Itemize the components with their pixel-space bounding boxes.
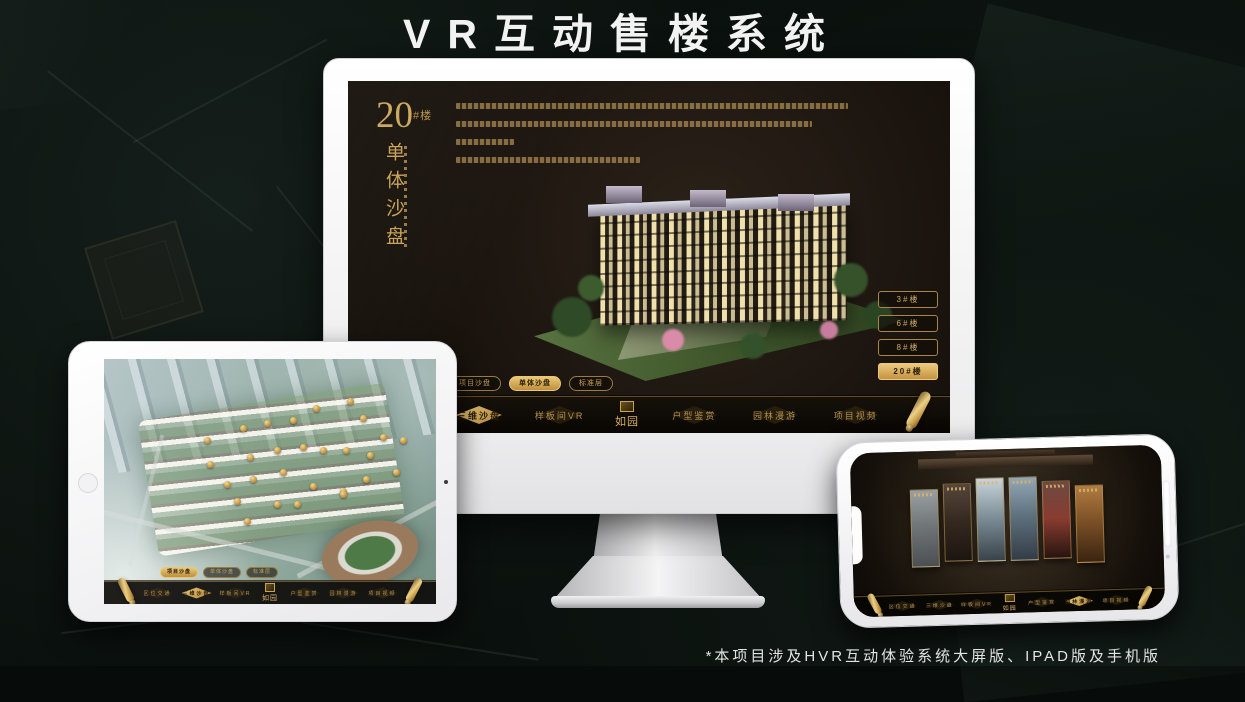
scene-panel-4[interactable] bbox=[1008, 476, 1038, 561]
scroll-icon-wrap bbox=[114, 583, 138, 603]
building-marker[interactable] bbox=[244, 518, 251, 525]
nav-item-2[interactable]: 三维沙盘 bbox=[177, 584, 216, 603]
phone-screen: 区位交通三维沙盘样板间VR如园户型鉴赏园林漫游项目视频 bbox=[850, 445, 1165, 618]
building-marker[interactable] bbox=[274, 501, 281, 508]
building-marker[interactable] bbox=[280, 469, 287, 476]
brand-logo-icon bbox=[265, 583, 275, 591]
phone-notch bbox=[851, 506, 863, 564]
building-marker[interactable] bbox=[320, 447, 327, 454]
main-navbar: 区位交通三维沙盘样板间VR如园户型鉴赏园林漫游项目视频 bbox=[104, 581, 436, 604]
brand-logo: 如园 bbox=[255, 583, 285, 602]
scene-panel-6[interactable] bbox=[1075, 484, 1105, 563]
building-marker[interactable] bbox=[204, 437, 211, 444]
scroll-ribbon-icon[interactable] bbox=[1137, 585, 1153, 608]
brand-logo-text: 如园 bbox=[255, 593, 285, 603]
brand-logo-text: 如园 bbox=[996, 603, 1024, 613]
building-marker[interactable] bbox=[224, 481, 231, 488]
building-marker[interactable] bbox=[360, 415, 367, 422]
nav-item-5[interactable]: 园林漫游 bbox=[1060, 591, 1098, 611]
monitor-stand-base bbox=[551, 596, 765, 608]
brand-logo: 如园 bbox=[995, 593, 1024, 612]
building-marker[interactable] bbox=[234, 498, 241, 505]
phone-side-button[interactable] bbox=[1163, 480, 1172, 546]
view-subtabs: 项目沙盘单体沙盘标准层 bbox=[160, 567, 278, 578]
building-marker[interactable] bbox=[347, 398, 354, 405]
scroll-icon-wrap bbox=[402, 583, 426, 603]
phone-device: 区位交通三维沙盘样板间VR如园户型鉴赏园林漫游项目视频 bbox=[835, 433, 1179, 628]
nav-item-6[interactable]: 项目视频 bbox=[1098, 590, 1136, 610]
building-marker[interactable] bbox=[264, 420, 271, 427]
nav-item-3[interactable]: 样板间VR bbox=[958, 594, 996, 614]
nav-item-4[interactable]: 户型鉴赏 bbox=[285, 584, 324, 603]
scene-gallery bbox=[910, 479, 1105, 568]
tablet-home-button[interactable] bbox=[78, 473, 98, 493]
building-marker[interactable] bbox=[294, 501, 301, 508]
nav-item-3[interactable]: 样板间VR bbox=[216, 584, 255, 603]
page-title: VR互动售楼系统 bbox=[0, 0, 1245, 60]
nav-item-2[interactable]: 三维沙盘 bbox=[921, 595, 959, 615]
phone-side-dot bbox=[1166, 554, 1170, 558]
nav-item-5[interactable]: 园林漫游 bbox=[324, 584, 363, 603]
brand-logo-icon bbox=[1004, 594, 1014, 603]
nav-item-4[interactable]: 户型鉴赏 bbox=[1023, 592, 1061, 612]
tablet-screen: 项目沙盘单体沙盘标准层 区位交通三维沙盘样板间VR如园户型鉴赏园林漫游项目视频 bbox=[104, 359, 436, 604]
scene-panel-2[interactable] bbox=[943, 483, 973, 562]
scroll-ribbon-icon[interactable] bbox=[405, 576, 424, 603]
building-marker[interactable] bbox=[343, 447, 350, 454]
tablet-device: 项目沙盘单体沙盘标准层 区位交通三维沙盘样板间VR如园户型鉴赏园林漫游项目视频 bbox=[68, 341, 457, 622]
tablet-camera bbox=[444, 480, 448, 484]
building-marker[interactable] bbox=[367, 452, 374, 459]
scene-panel-3[interactable] bbox=[976, 477, 1006, 562]
subtab-1[interactable]: 项目沙盘 bbox=[160, 567, 198, 578]
nav-item-1[interactable]: 区位交通 bbox=[884, 596, 922, 616]
scroll-icon-wrap bbox=[1135, 591, 1155, 608]
scroll-ribbon-icon[interactable] bbox=[117, 576, 136, 603]
scene-panel-5[interactable] bbox=[1042, 480, 1072, 559]
building-marker[interactable] bbox=[400, 437, 407, 444]
building-marker[interactable] bbox=[274, 447, 281, 454]
footnote: *本项目涉及HVR互动体验系统大屏版、IPAD版及手机版 bbox=[706, 645, 1161, 666]
subtab-3[interactable]: 标准层 bbox=[246, 567, 278, 578]
scroll-ribbon-icon[interactable] bbox=[866, 593, 883, 616]
monitor-stand-neck bbox=[593, 508, 723, 562]
nav-item-6[interactable]: 项目视频 bbox=[363, 584, 402, 603]
nav-item-1[interactable]: 区位交通 bbox=[138, 584, 177, 603]
building-marker[interactable] bbox=[340, 491, 347, 498]
scene-panel-1[interactable] bbox=[910, 489, 940, 568]
building-marker[interactable] bbox=[393, 469, 400, 476]
subtab-2[interactable]: 单体沙盘 bbox=[203, 567, 241, 578]
scroll-icon-wrap bbox=[864, 598, 884, 615]
